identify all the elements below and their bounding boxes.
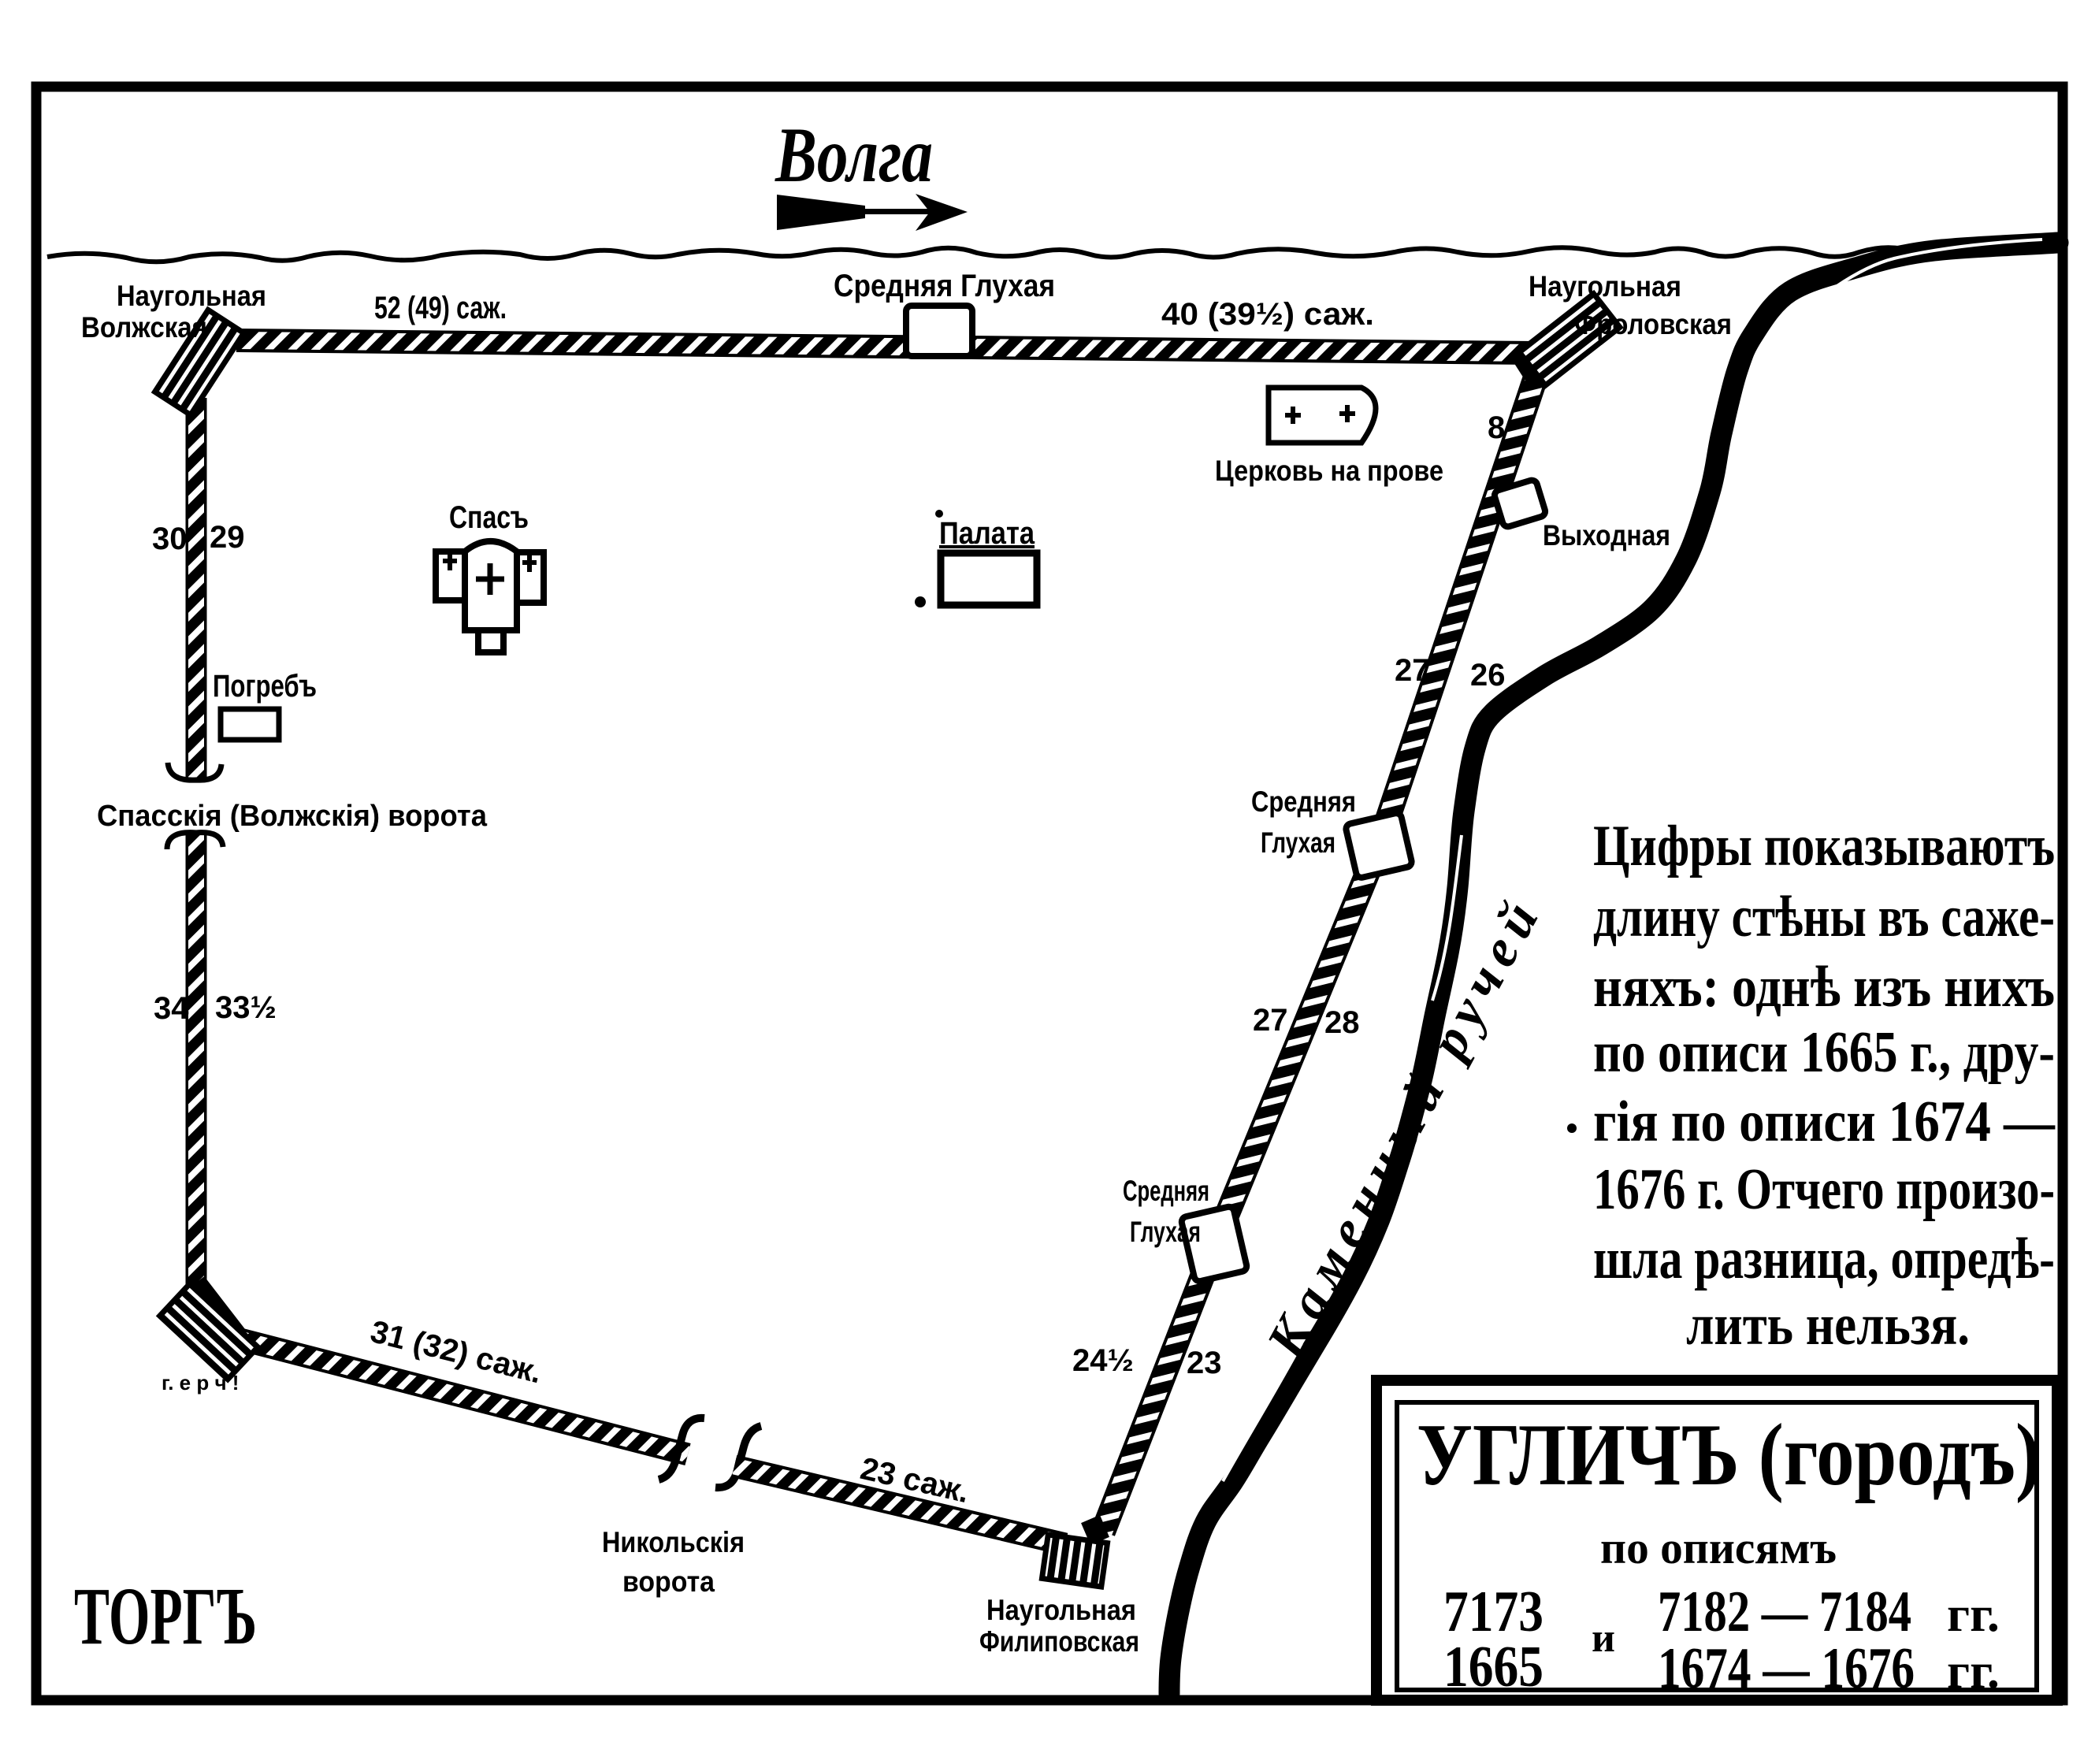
svg-text:7182 — 7184: 7182 — 7184	[1658, 1580, 1911, 1644]
svg-text:Волжская: Волжская	[81, 311, 207, 344]
svg-text:26: 26	[1470, 658, 1506, 693]
svg-text:Наугольная: Наугольная	[1529, 270, 1681, 303]
svg-text:шла разница, опредѣ-: шла разница, опредѣ-	[1593, 1227, 2055, 1291]
svg-text:гія по описи 1674 —: гія по описи 1674 —	[1593, 1090, 2056, 1154]
svg-text:Спасскія (Волжскія) ворота: Спасскія (Волжскія) ворота	[97, 800, 488, 833]
svg-text:по описямъ: по описямъ	[1600, 1522, 1837, 1573]
svg-text:гг.: гг.	[1947, 1586, 2000, 1642]
svg-text:40 (39½) саж.: 40 (39½) саж.	[1161, 297, 1374, 332]
svg-text:Глухая: Глухая	[1261, 826, 1335, 859]
svg-text:Спасъ: Спасъ	[449, 500, 529, 535]
svg-text:Выходная: Выходная	[1543, 519, 1670, 551]
svg-text:34: 34	[154, 991, 189, 1026]
svg-text:24½: 24½	[1072, 1343, 1134, 1378]
svg-text:ворота: ворота	[622, 1565, 715, 1598]
svg-text:г. е р ч !: г. е р ч !	[162, 1371, 239, 1394]
svg-text:28: 28	[1324, 1005, 1360, 1040]
svg-text:27: 27	[1395, 653, 1430, 688]
svg-text:Наугольная: Наугольная	[117, 280, 266, 312]
svg-text:Никольскія: Никольскія	[602, 1526, 745, 1558]
svg-text:52 (49) саж.: 52 (49) саж.	[374, 291, 507, 325]
svg-text:Погребъ: Погребъ	[213, 669, 317, 704]
svg-text:Филиповская: Филиповская	[979, 1625, 1139, 1658]
svg-text:няхъ: однѣ изъ нихъ: няхъ: однѣ изъ нихъ	[1593, 955, 2055, 1019]
svg-text:8: 8	[1488, 410, 1505, 445]
svg-text:1665: 1665	[1443, 1635, 1543, 1699]
svg-text:длину стѣны въ саже-: длину стѣны въ саже-	[1593, 885, 2055, 949]
svg-text:ТОРГЪ: ТОРГЪ	[74, 1571, 257, 1662]
svg-text:и: и	[1592, 1616, 1615, 1661]
svg-text:гг.: гг.	[1947, 1643, 2000, 1699]
svg-text:1676 г. Отчего произо-: 1676 г. Отчего произо-	[1593, 1157, 2055, 1222]
svg-text:Фроловская: Фроловская	[1574, 308, 1732, 340]
svg-text:33½: 33½	[215, 990, 277, 1025]
svg-text:Палата: Палата	[939, 516, 1035, 551]
svg-text:по описи 1665 г., дру-: по описи 1665 г., дру-	[1593, 1020, 2055, 1085]
svg-text:Средняя: Средняя	[1123, 1175, 1209, 1207]
svg-text:Средняя: Средняя	[1251, 785, 1356, 818]
svg-text:Волга: Волга	[775, 111, 933, 199]
svg-text:27: 27	[1253, 1003, 1288, 1038]
svg-text:лить нельзя.: лить нельзя.	[1686, 1293, 1970, 1357]
svg-text:Глухая: Глухая	[1130, 1216, 1201, 1248]
svg-text:1674 — 1676: 1674 — 1676	[1658, 1636, 1915, 1701]
svg-text:Цифры показываютъ: Цифры показываютъ	[1593, 814, 2055, 878]
svg-text:Средняя Глухая: Средняя Глухая	[834, 269, 1055, 303]
svg-text:Наугольная: Наугольная	[986, 1594, 1136, 1626]
svg-text:УГЛИЧЪ (городъ): УГЛИЧЪ (городъ)	[1417, 1406, 2041, 1504]
svg-text:30: 30	[152, 522, 188, 556]
svg-text:Церковь на прове: Церковь на прове	[1215, 455, 1443, 487]
svg-text:29: 29	[210, 520, 245, 555]
svg-text:23: 23	[1187, 1346, 1222, 1380]
